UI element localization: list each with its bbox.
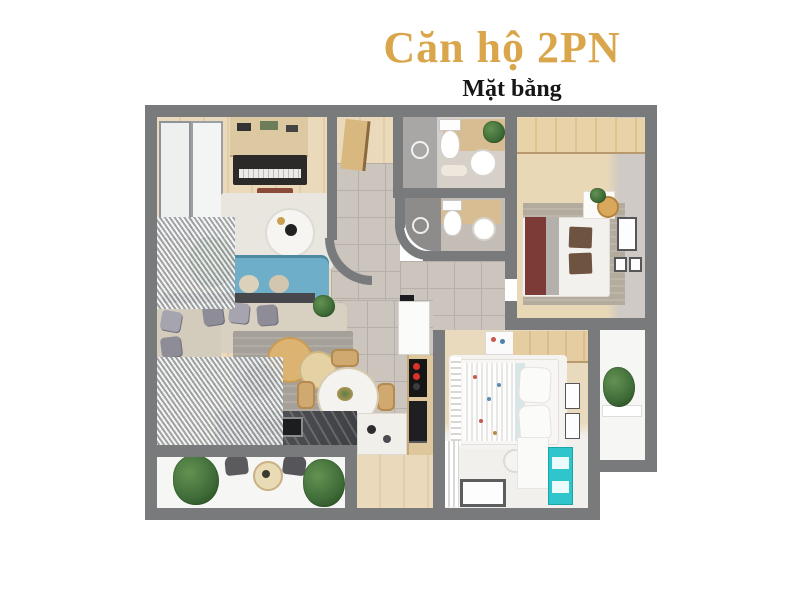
wall-bedroom1-west-upper: [505, 117, 517, 279]
shower-head-icon: [411, 141, 429, 159]
dining-chair: [297, 381, 315, 409]
throw-pillow: [256, 304, 278, 326]
table-decor-icon: [285, 224, 297, 236]
wall-art-frame: [629, 257, 642, 272]
plant-icon: [603, 367, 635, 407]
wall-outer-right: [645, 105, 657, 472]
shelf-decor-icon: [237, 123, 251, 131]
balcony-chair: [224, 454, 249, 476]
page-title: Căn hộ 2PN: [302, 22, 702, 73]
desk-white: [517, 437, 549, 489]
plant-icon: [483, 121, 505, 143]
toilet: [440, 130, 460, 159]
wall-bedroom1-bottom: [505, 318, 657, 330]
cabinet-teal: [548, 447, 573, 505]
shelf-decor-icon: [286, 125, 298, 132]
wall-art-frame: [614, 257, 627, 272]
wall-kitchen-bedroom2: [433, 330, 445, 508]
plant-icon: [313, 295, 335, 317]
wall-bath-divider: [400, 188, 505, 198]
wall-outer-bottom: [145, 508, 597, 520]
window-blinds-lower: [157, 357, 283, 447]
kitchen-island-marble: [357, 413, 407, 455]
bed-pillow-brown: [569, 227, 593, 249]
shelf-decor-icon: [260, 121, 278, 130]
burner-icon: [413, 363, 420, 370]
bed-headboard-slats: [451, 357, 461, 445]
wall-bath2-bottom: [423, 251, 505, 261]
table-centerpiece-icon: [337, 387, 353, 401]
wall-bath2-left: [395, 198, 405, 228]
wall-entry-east: [393, 117, 403, 198]
throw-pillow: [160, 336, 182, 358]
curtain-strip: [445, 441, 459, 507]
table-decor-icon: [262, 470, 270, 478]
window-blinds-upper: [157, 217, 235, 309]
bed-blanket-fold: [546, 217, 559, 295]
entry-door: [340, 119, 370, 171]
sofa-cushion: [239, 275, 259, 293]
wall-balcony-return: [345, 445, 357, 520]
sink-round: [469, 149, 497, 177]
burner-icon: [413, 383, 420, 390]
dresser-white: [485, 331, 515, 355]
toilet: [443, 210, 462, 236]
plant-icon: [303, 459, 345, 507]
plant-icon: [590, 188, 606, 203]
piano-keys: [239, 169, 301, 178]
quilt-speckles-icon: [473, 375, 477, 379]
balcony-shelf: [602, 405, 642, 417]
sink-round: [472, 217, 496, 241]
kettle-icon: [367, 425, 376, 434]
wall-lounge-balcony: [145, 445, 357, 457]
apartment-floor-plan: [145, 105, 657, 520]
plant-icon: [173, 455, 219, 505]
bedroom-2-window: [460, 479, 506, 507]
bath-mat: [441, 165, 467, 176]
refrigerator: [398, 301, 430, 355]
oven: [409, 401, 427, 443]
wall-outer-top: [145, 105, 657, 117]
burner-icon: [413, 373, 420, 380]
wall-outer-left: [145, 105, 157, 520]
wall-art-frame: [617, 217, 637, 251]
throw-pillow: [159, 309, 182, 332]
dining-chair: [331, 349, 359, 367]
bed-pillow-brown: [569, 253, 593, 275]
page-subtitle: Mặt bằng: [312, 76, 712, 103]
bed-runner-maroon: [525, 217, 546, 295]
sofa-cushion: [269, 275, 289, 293]
dining-chair: [377, 383, 395, 411]
floor-plan-page: Căn hộ 2PN Mặt bằng: [0, 0, 800, 600]
bed-pillow-white: [518, 366, 552, 404]
pot-icon: [383, 435, 391, 443]
table-decor-icon: [277, 217, 285, 225]
bed-quilt-striped: [463, 363, 515, 441]
cabinet-shelf-slots: [552, 457, 569, 469]
wall-art-frame: [565, 383, 580, 409]
dresser-knobs-icon: [491, 337, 496, 342]
wall-living-east: [327, 117, 337, 240]
wall-bedroom2-balcony: [588, 330, 600, 520]
wardrobe-1: [517, 118, 645, 154]
kitchen-wood-floor: [357, 453, 433, 508]
wall-art-frame: [565, 413, 580, 439]
